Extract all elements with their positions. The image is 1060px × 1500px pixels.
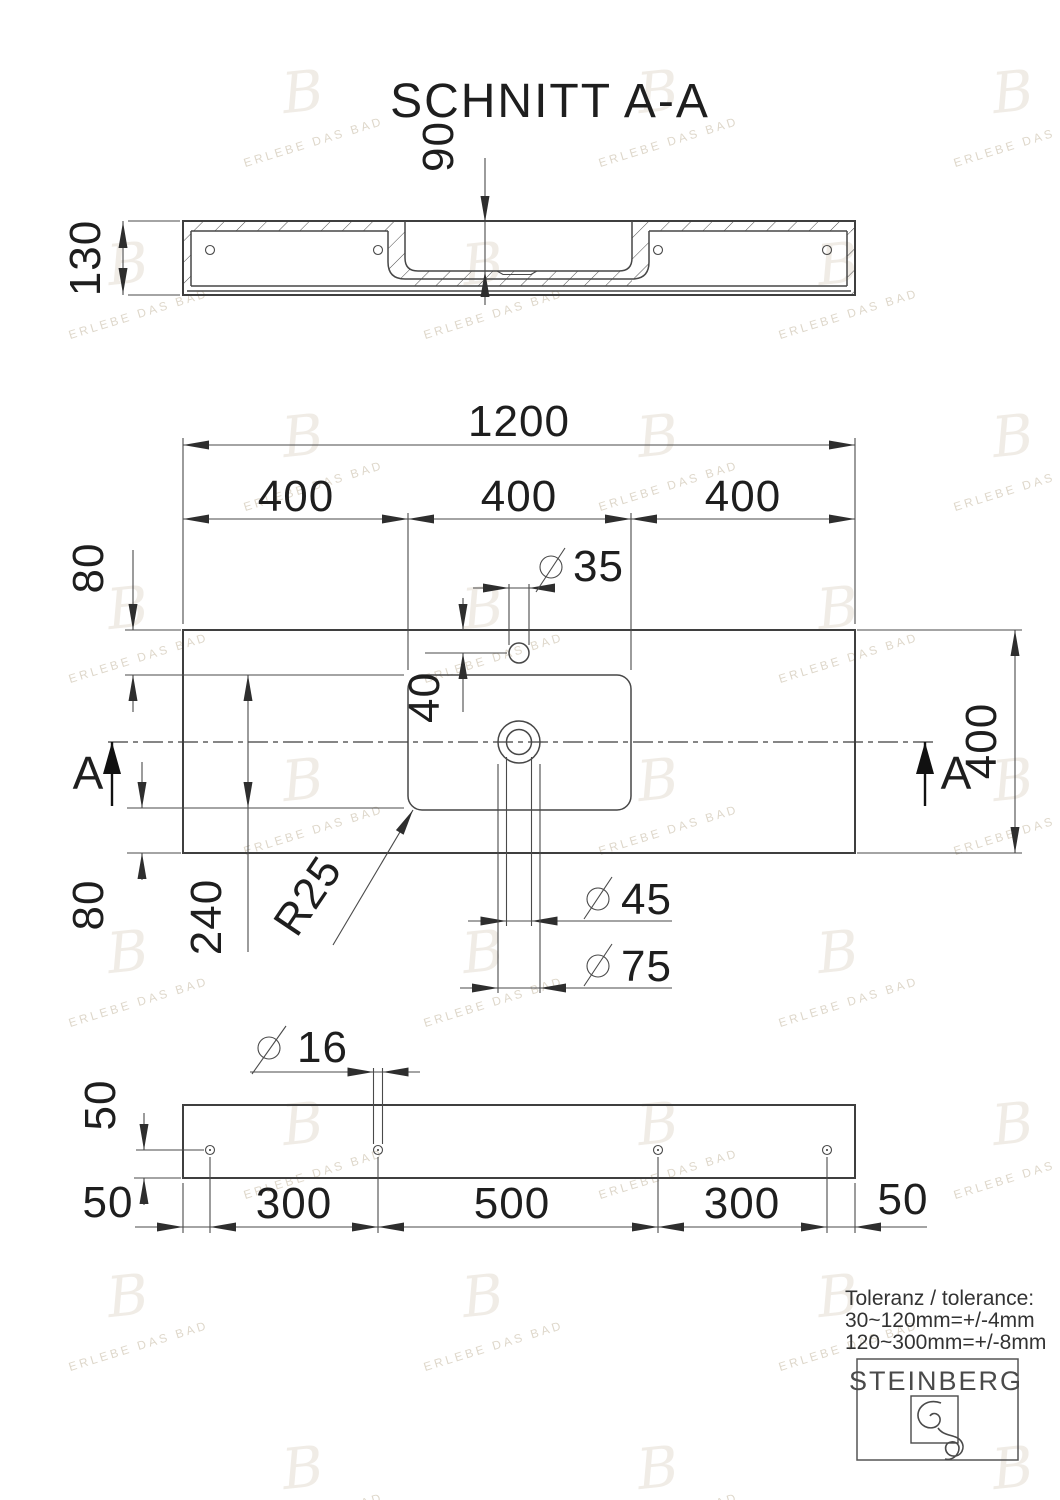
drawing-canvas: SCHNITT A-A	[0, 0, 1060, 1500]
bottom-mount-holes	[206, 1146, 832, 1155]
tolerance-range-2: 120~300mm=+/-8mm	[845, 1331, 1046, 1354]
section-topdeck-left-hatch	[183, 221, 388, 231]
width-segment-1-label: 400	[258, 472, 334, 521]
dim-faucet-offset: 40	[400, 598, 507, 723]
section-view: 130 90	[61, 121, 855, 305]
total-width-label: 1200	[468, 397, 570, 446]
mount-hole-dia-label: 16	[297, 1023, 348, 1072]
technical-drawing-page: BERLEBE DAS BADBERLEBE DAS BADBERLEBE DA…	[0, 0, 1060, 1500]
section-mount-hole-3	[654, 246, 663, 255]
section-bowl-bottom-hatch	[405, 279, 632, 286]
tolerance-title: Toleranz / tolerance:	[845, 1287, 1034, 1310]
section-bowl-inner-profile	[405, 221, 632, 271]
brand-stamp: STEINBERG	[849, 1359, 1023, 1460]
diameter-symbol	[584, 877, 612, 919]
section-topdeck-right-hatch	[649, 221, 855, 231]
hole-spacing-1-label: 300	[256, 1179, 332, 1228]
diameter-symbol	[252, 1026, 286, 1074]
dim-bottom-offset: 80	[64, 762, 404, 930]
margin-right-label: 50	[878, 1175, 929, 1224]
dim-drain-dia: 45	[468, 757, 672, 926]
hole-spacing-2-label: 500	[474, 1179, 550, 1228]
section-letter-left: A	[73, 747, 104, 799]
section-mount-hole-2	[374, 246, 383, 255]
faucet-offset-label: 40	[400, 672, 449, 723]
drain-outer-dia-label: 75	[621, 942, 672, 991]
tolerance-note: Toleranz / tolerance: 30~120mm=+/-4mm 12…	[845, 1287, 1046, 1354]
bottom-offset-label: 80	[64, 880, 113, 931]
drain-dia-label: 45	[621, 875, 672, 924]
dim-mount-hole-dia: 16	[250, 1023, 420, 1144]
section-marker-left: A	[73, 742, 121, 806]
dim-recess-depth: 240	[182, 675, 253, 955]
section-marker-right: A	[916, 742, 972, 806]
dim-corner-radius: R25	[264, 810, 413, 945]
bottom-outline	[183, 1105, 855, 1178]
section-letter-right: A	[941, 747, 972, 799]
top-offset-label: 80	[64, 543, 113, 594]
tolerance-range-1: 30~120mm=+/-4mm	[845, 1309, 1035, 1332]
bottom-view: 16 50	[76, 1023, 928, 1233]
section-left-wall-hatch	[183, 221, 191, 295]
plan-view: 1200 400 400 400	[64, 397, 1022, 993]
dim-top-offset: 80	[64, 543, 404, 712]
width-segment-3-label: 400	[705, 472, 781, 521]
hole-spacing-3-label: 300	[704, 1179, 780, 1228]
dim-hole-spacing-chain: 50 300 500 300 50	[83, 1157, 929, 1233]
basin-depth-label: 90	[414, 121, 463, 172]
drawing-title: SCHNITT A-A	[390, 75, 710, 128]
width-segment-2-label: 400	[481, 472, 557, 521]
brand-name: STEINBERG	[849, 1366, 1023, 1396]
diameter-symbol	[584, 944, 612, 986]
faucet-dia-label: 35	[573, 542, 624, 591]
plan-faucet-hole	[509, 643, 529, 663]
section-right-wall-hatch	[847, 221, 855, 295]
dim-width-segments: 400 400 400	[183, 472, 855, 670]
recess-depth-label: 240	[182, 879, 231, 955]
brand-squiggle-icon	[918, 1402, 963, 1460]
margin-left-label: 50	[83, 1178, 134, 1227]
corner-radius-label: R25	[264, 847, 351, 944]
section-mount-hole-1	[206, 246, 215, 255]
dim-section-height: 130	[61, 220, 180, 296]
hole-edge-offset-label: 50	[76, 1080, 125, 1131]
section-mount-hole-4	[823, 246, 832, 255]
section-height-label: 130	[61, 220, 110, 296]
